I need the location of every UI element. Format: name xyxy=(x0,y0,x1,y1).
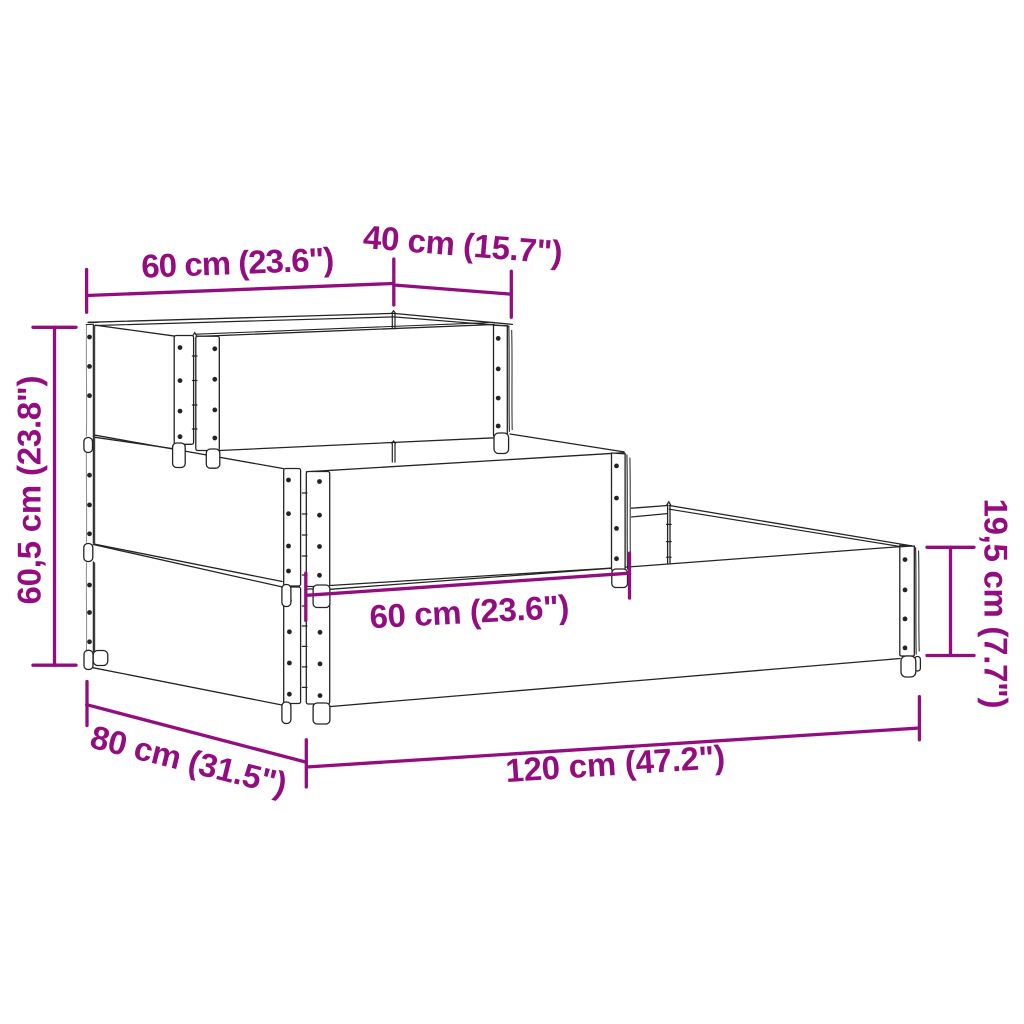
svg-text:60 cm (23.6"): 60 cm (23.6") xyxy=(141,240,335,284)
svg-text:19,5 cm (7.7"): 19,5 cm (7.7") xyxy=(977,499,1014,709)
svg-text:60,5 cm (23.8"): 60,5 cm (23.8") xyxy=(11,376,48,605)
